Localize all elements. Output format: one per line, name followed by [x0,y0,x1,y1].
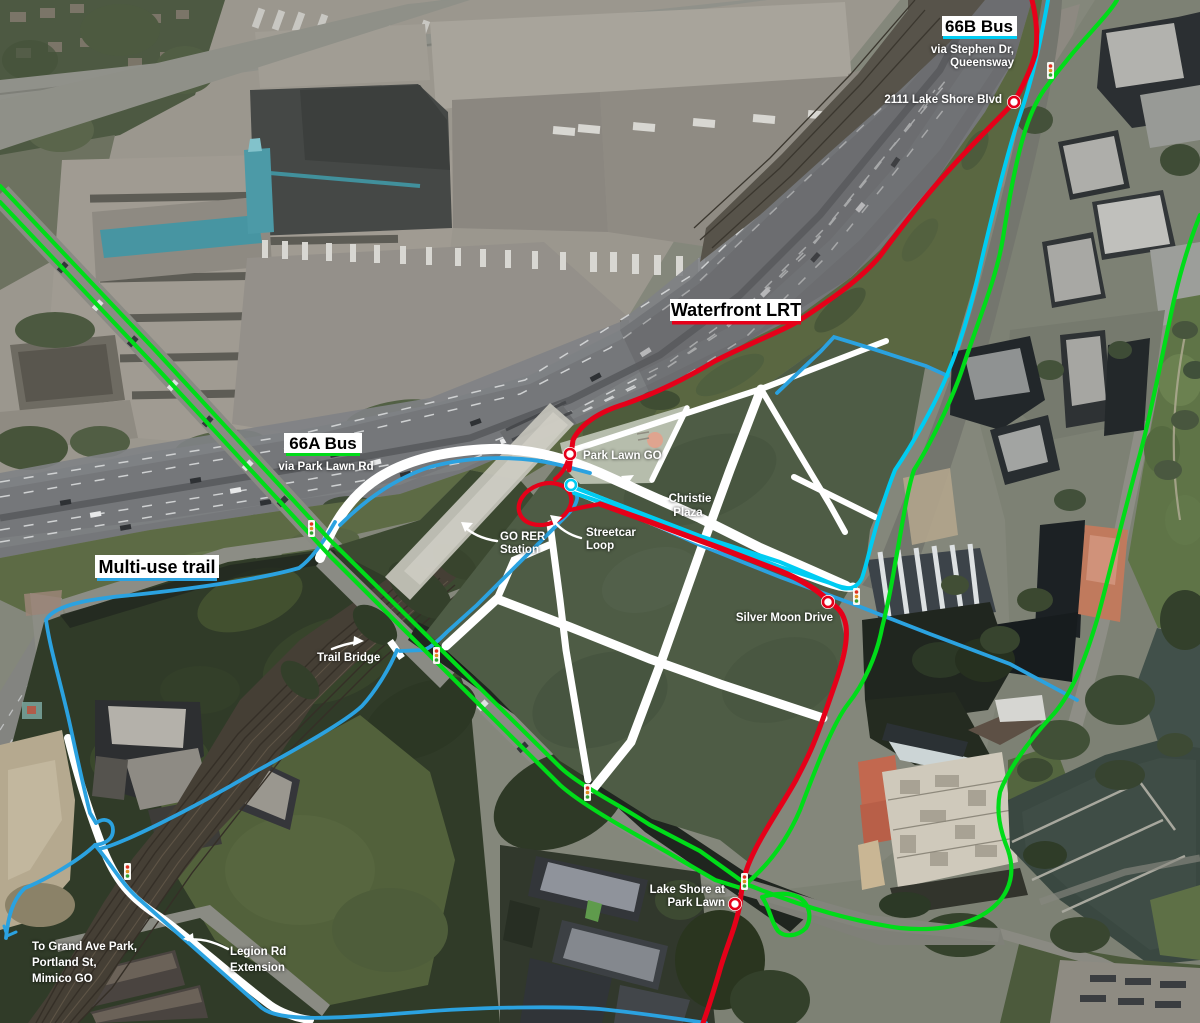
svg-text:via Park Lawn Rd: via Park Lawn Rd [278,461,373,473]
svg-text:Park Lawn GO: Park Lawn GO [583,450,662,462]
svg-text:Loop: Loop [586,540,614,552]
svg-text:Lake Shore at: Lake Shore at [650,884,726,896]
svg-text:Multi-use trail: Multi-use trail [98,557,215,577]
svg-text:Park Lawn: Park Lawn [667,897,725,909]
svg-text:Mimico GO: Mimico GO [32,973,93,985]
svg-text:Silver Moon Drive: Silver Moon Drive [736,612,833,624]
svg-text:Streetcar: Streetcar [586,527,636,539]
svg-text:Portland St,: Portland St, [32,957,97,969]
svg-text:via Stephen Dr,: via Stephen Dr, [931,44,1014,56]
svg-text:Waterfront LRT: Waterfront LRT [671,300,801,320]
svg-text:GO RER: GO RER [500,531,546,543]
svg-text:Station: Station [500,544,539,556]
svg-text:2111 Lake Shore Blvd: 2111 Lake Shore Blvd [884,94,1002,106]
svg-text:Queensway: Queensway [950,57,1015,69]
svg-text:66B Bus: 66B Bus [945,17,1013,36]
svg-text:Plaza: Plaza [673,507,703,519]
svg-text:66A Bus: 66A Bus [289,434,356,453]
svg-text:Extension: Extension [230,962,285,974]
svg-text:Christie: Christie [669,493,712,505]
svg-text:Legion Rd: Legion Rd [230,946,286,958]
svg-text:To Grand Ave Park,: To Grand Ave Park, [32,941,137,953]
svg-text:Trail Bridge: Trail Bridge [317,652,380,664]
